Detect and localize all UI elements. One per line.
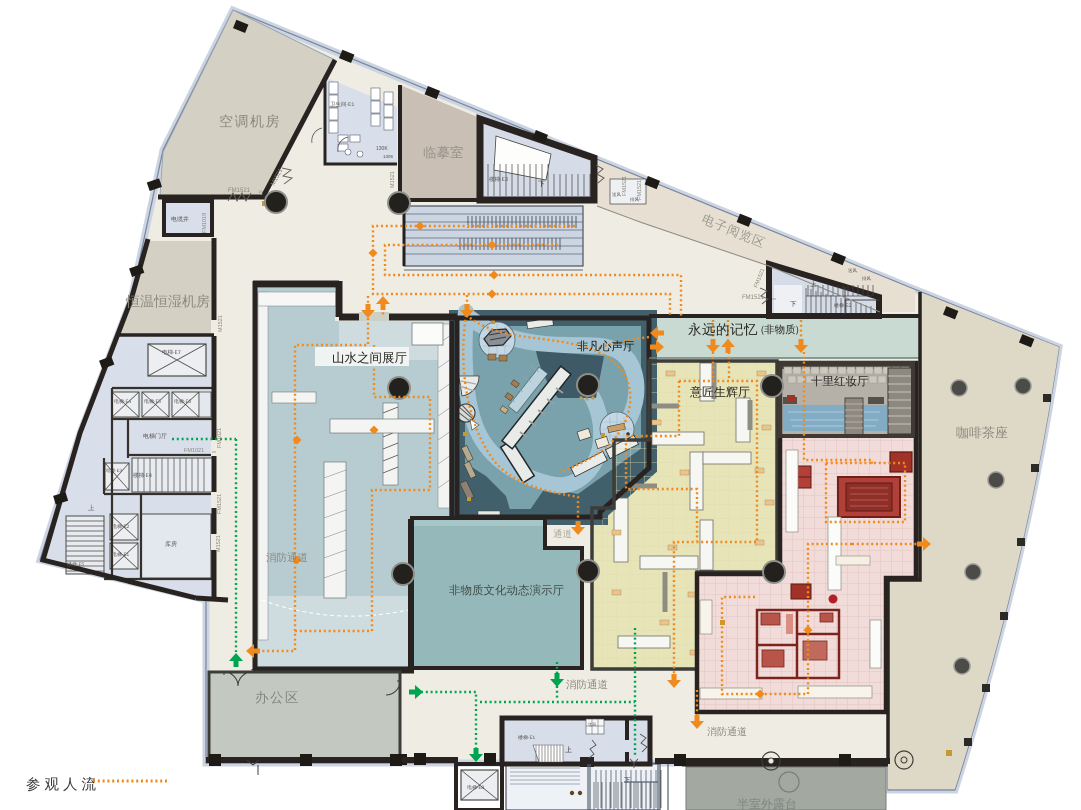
svg-text:FM1521: FM1521 xyxy=(637,180,643,200)
svg-text:FM1521: FM1521 xyxy=(742,295,765,301)
svg-text:M1521: M1521 xyxy=(390,171,396,188)
svg-text:FM1521: FM1521 xyxy=(217,494,223,514)
svg-text:FM1021: FM1021 xyxy=(217,428,223,448)
svg-text:FM1521: FM1521 xyxy=(622,176,628,196)
svg-text:19: 19 xyxy=(258,189,263,194)
svg-text:M1521: M1521 xyxy=(218,315,224,332)
svg-text:1306: 1306 xyxy=(383,154,394,159)
svg-text:M1521: M1521 xyxy=(216,535,222,552)
svg-text:130K: 130K xyxy=(376,146,388,152)
svg-text:FM1021: FM1021 xyxy=(184,448,204,454)
svg-text:xx: xx xyxy=(772,296,776,301)
svg-text:FM1019: FM1019 xyxy=(202,213,208,233)
svg-text:xx: xx xyxy=(212,449,216,454)
svg-text:FM1521: FM1521 xyxy=(228,188,251,194)
